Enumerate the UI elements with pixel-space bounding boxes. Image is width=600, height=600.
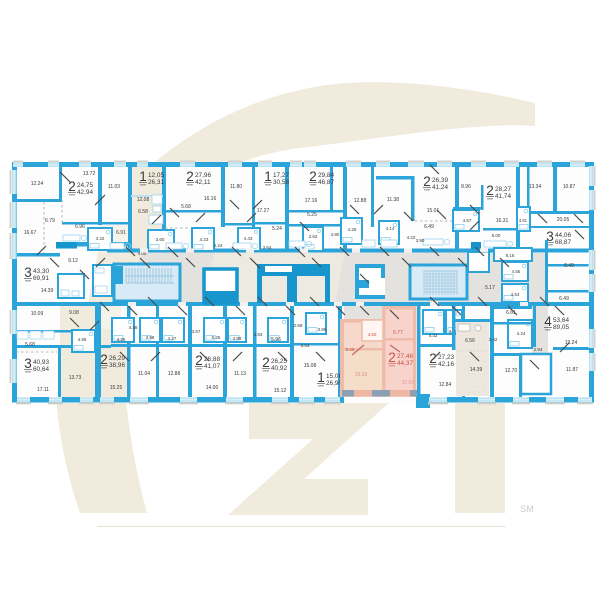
- svg-text:3.88: 3.88: [233, 336, 242, 341]
- svg-text:комн: комн: [25, 280, 31, 283]
- svg-text:1: 1: [264, 169, 272, 184]
- svg-text:5.17: 5.17: [485, 285, 495, 291]
- svg-text:41,07: 41,07: [204, 363, 220, 370]
- svg-text:4.27: 4.27: [168, 336, 177, 341]
- svg-text:6.49: 6.49: [559, 296, 569, 302]
- svg-text:комн: комн: [25, 371, 31, 374]
- svg-text:4.90: 4.90: [331, 232, 340, 237]
- svg-text:комн: комн: [487, 198, 493, 201]
- svg-text:11.38: 11.38: [387, 197, 399, 203]
- svg-text:5.68: 5.68: [181, 204, 191, 210]
- svg-text:комн: комн: [318, 385, 324, 388]
- svg-text:13.73: 13.73: [69, 375, 82, 381]
- svg-text:11.04: 11.04: [138, 371, 150, 377]
- svg-text:26,29: 26,29: [109, 355, 125, 362]
- svg-text:6.25: 6.25: [212, 335, 221, 340]
- svg-text:4.26: 4.26: [348, 227, 357, 232]
- svg-text:12,05: 12,05: [148, 172, 164, 179]
- svg-text:5.00: 5.00: [492, 233, 501, 238]
- svg-text:16.67: 16.67: [24, 230, 37, 236]
- svg-text:46,87: 46,87: [318, 179, 334, 186]
- svg-text:1: 1: [139, 169, 147, 184]
- svg-text:13.72: 13.72: [83, 171, 96, 177]
- svg-text:26,90: 26,90: [326, 380, 342, 387]
- svg-text:6.58: 6.58: [138, 209, 148, 215]
- svg-text:4.24: 4.24: [517, 331, 526, 336]
- svg-text:26,88: 26,88: [204, 356, 220, 363]
- svg-text:2: 2: [423, 174, 431, 189]
- svg-text:комн: комн: [69, 194, 75, 197]
- svg-text:2: 2: [388, 350, 396, 365]
- svg-text:44,37: 44,37: [397, 360, 413, 367]
- svg-text:11.03: 11.03: [108, 184, 120, 190]
- svg-text:комн: комн: [389, 365, 395, 368]
- svg-text:3.60: 3.60: [156, 237, 165, 242]
- svg-text:12.88: 12.88: [168, 371, 181, 377]
- svg-text:комн: комн: [187, 184, 193, 187]
- svg-text:17,27: 17,27: [273, 172, 289, 179]
- svg-text:2.94: 2.94: [534, 347, 543, 352]
- svg-text:комн: комн: [265, 184, 271, 187]
- svg-text:14.39: 14.39: [470, 367, 483, 373]
- svg-text:42,16: 42,16: [438, 361, 454, 368]
- svg-text:89,05: 89,05: [553, 324, 569, 331]
- svg-text:4.22: 4.22: [407, 235, 416, 240]
- svg-text:5.96: 5.96: [271, 337, 281, 343]
- svg-text:15.08: 15.08: [304, 363, 317, 369]
- svg-text:27,23: 27,23: [438, 354, 454, 361]
- svg-text:3.98: 3.98: [146, 335, 155, 340]
- svg-text:14.00: 14.00: [206, 385, 219, 391]
- svg-text:24,75: 24,75: [77, 182, 93, 189]
- svg-text:26,39: 26,39: [432, 177, 448, 184]
- svg-text:11.13: 11.13: [234, 371, 246, 377]
- svg-text:16.31: 16.31: [496, 218, 509, 224]
- svg-text:2: 2: [100, 352, 108, 367]
- svg-text:4.57: 4.57: [463, 218, 472, 223]
- svg-text:3: 3: [24, 265, 32, 280]
- svg-text:6.56: 6.56: [465, 338, 475, 344]
- svg-text:42,11: 42,11: [195, 179, 211, 186]
- svg-text:3.67: 3.67: [192, 329, 201, 334]
- svg-text:1: 1: [317, 370, 325, 385]
- svg-text:8.96: 8.96: [461, 184, 471, 190]
- svg-text:4: 4: [544, 314, 552, 329]
- svg-text:5.24: 5.24: [272, 226, 282, 232]
- svg-text:6.96: 6.96: [75, 224, 85, 230]
- svg-text:38,96: 38,96: [109, 362, 125, 369]
- svg-text:3.64: 3.64: [263, 245, 272, 250]
- svg-text:12.70: 12.70: [505, 368, 518, 374]
- svg-text:41,24: 41,24: [432, 184, 448, 191]
- svg-text:4.38: 4.38: [129, 325, 138, 330]
- svg-text:15,08: 15,08: [326, 373, 342, 380]
- svg-text:16.33: 16.33: [355, 372, 368, 378]
- svg-text:8.49: 8.49: [564, 263, 574, 269]
- svg-text:12.88: 12.88: [354, 198, 367, 204]
- svg-text:4.83: 4.83: [254, 332, 263, 337]
- svg-text:42,94: 42,94: [77, 189, 93, 196]
- svg-text:3: 3: [24, 356, 32, 371]
- svg-text:43,30: 43,30: [33, 268, 49, 275]
- svg-text:комн: комн: [547, 244, 553, 247]
- svg-text:68,87: 68,87: [555, 239, 571, 246]
- svg-text:30,58: 30,58: [273, 179, 289, 186]
- svg-text:8.16: 8.16: [506, 253, 515, 258]
- svg-text:5.53: 5.53: [301, 343, 310, 348]
- svg-text:4.36: 4.36: [117, 337, 126, 342]
- svg-text:26,31: 26,31: [148, 179, 164, 186]
- svg-text:27,96: 27,96: [195, 172, 211, 179]
- svg-text:4.24: 4.24: [214, 243, 223, 248]
- svg-text:комн: комн: [196, 368, 202, 371]
- svg-text:3.80: 3.80: [318, 327, 327, 332]
- svg-text:5.77: 5.77: [393, 330, 403, 336]
- svg-text:44,06: 44,06: [555, 232, 571, 239]
- svg-text:SM: SM: [520, 504, 534, 514]
- svg-text:2: 2: [195, 353, 203, 368]
- svg-text:13.34: 13.34: [529, 184, 542, 190]
- svg-text:60,64: 60,64: [33, 366, 49, 373]
- svg-text:4.95: 4.95: [78, 337, 87, 342]
- svg-text:2: 2: [309, 169, 317, 184]
- svg-text:комн: комн: [101, 367, 107, 370]
- svg-text:4.32: 4.32: [96, 236, 105, 241]
- svg-text:17.16: 17.16: [305, 198, 318, 204]
- svg-text:20.05: 20.05: [557, 217, 570, 223]
- svg-text:10.09: 10.09: [31, 311, 44, 317]
- svg-text:40,92: 40,92: [271, 365, 287, 372]
- svg-text:17.11: 17.11: [37, 387, 49, 393]
- svg-text:2.69: 2.69: [294, 323, 303, 328]
- svg-text:69,91: 69,91: [33, 275, 49, 282]
- svg-text:11.80: 11.80: [230, 184, 242, 190]
- svg-text:15.25: 15.25: [110, 385, 123, 391]
- svg-text:4.55: 4.55: [512, 269, 521, 274]
- svg-text:41,74: 41,74: [495, 193, 511, 200]
- svg-text:12.24: 12.24: [31, 181, 44, 187]
- svg-text:комн: комн: [545, 329, 551, 332]
- svg-text:2: 2: [486, 183, 494, 198]
- svg-text:2.62: 2.62: [309, 234, 318, 239]
- svg-text:9.12: 9.12: [68, 258, 78, 264]
- svg-text:2: 2: [262, 355, 270, 370]
- svg-text:10.87: 10.87: [563, 184, 576, 190]
- svg-text:17.27: 17.27: [257, 208, 270, 214]
- svg-text:4.23: 4.23: [200, 237, 209, 242]
- svg-text:комн: комн: [424, 189, 430, 192]
- svg-text:4.50: 4.50: [368, 332, 377, 337]
- svg-text:3.81: 3.81: [519, 218, 528, 223]
- svg-text:27,46: 27,46: [397, 353, 413, 360]
- svg-text:6.91: 6.91: [116, 230, 126, 236]
- svg-text:17.07: 17.07: [402, 380, 415, 386]
- svg-text:9.08: 9.08: [69, 310, 79, 316]
- svg-text:11.87: 11.87: [566, 367, 578, 373]
- svg-text:5.25: 5.25: [307, 212, 317, 218]
- svg-text:12.84: 12.84: [439, 382, 452, 388]
- svg-text:6.79: 6.79: [45, 218, 55, 224]
- svg-text:4.14: 4.14: [386, 226, 395, 231]
- svg-text:53,64: 53,64: [553, 317, 569, 324]
- svg-text:6.49: 6.49: [424, 224, 434, 230]
- svg-text:комн: комн: [430, 366, 436, 369]
- svg-text:12.08: 12.08: [137, 197, 150, 203]
- svg-text:4.43: 4.43: [244, 236, 253, 241]
- svg-text:16.16: 16.16: [204, 196, 217, 202]
- svg-text:3.90: 3.90: [416, 238, 425, 243]
- svg-text:8.58: 8.58: [346, 347, 355, 352]
- svg-text:4.32: 4.32: [429, 333, 438, 338]
- svg-text:5.68: 5.68: [25, 342, 35, 348]
- svg-text:4.54: 4.54: [511, 292, 520, 297]
- svg-text:2: 2: [186, 169, 194, 184]
- svg-text:комн: комн: [140, 184, 146, 187]
- svg-text:3.42: 3.42: [489, 337, 498, 342]
- svg-text:15.12: 15.12: [274, 388, 287, 394]
- svg-text:14.39: 14.39: [41, 288, 54, 294]
- svg-text:28,27: 28,27: [495, 186, 511, 193]
- svg-text:комн: комн: [310, 184, 316, 187]
- svg-text:40,93: 40,93: [33, 359, 49, 366]
- svg-text:29,84: 29,84: [318, 172, 334, 179]
- svg-text:комн: комн: [263, 370, 269, 373]
